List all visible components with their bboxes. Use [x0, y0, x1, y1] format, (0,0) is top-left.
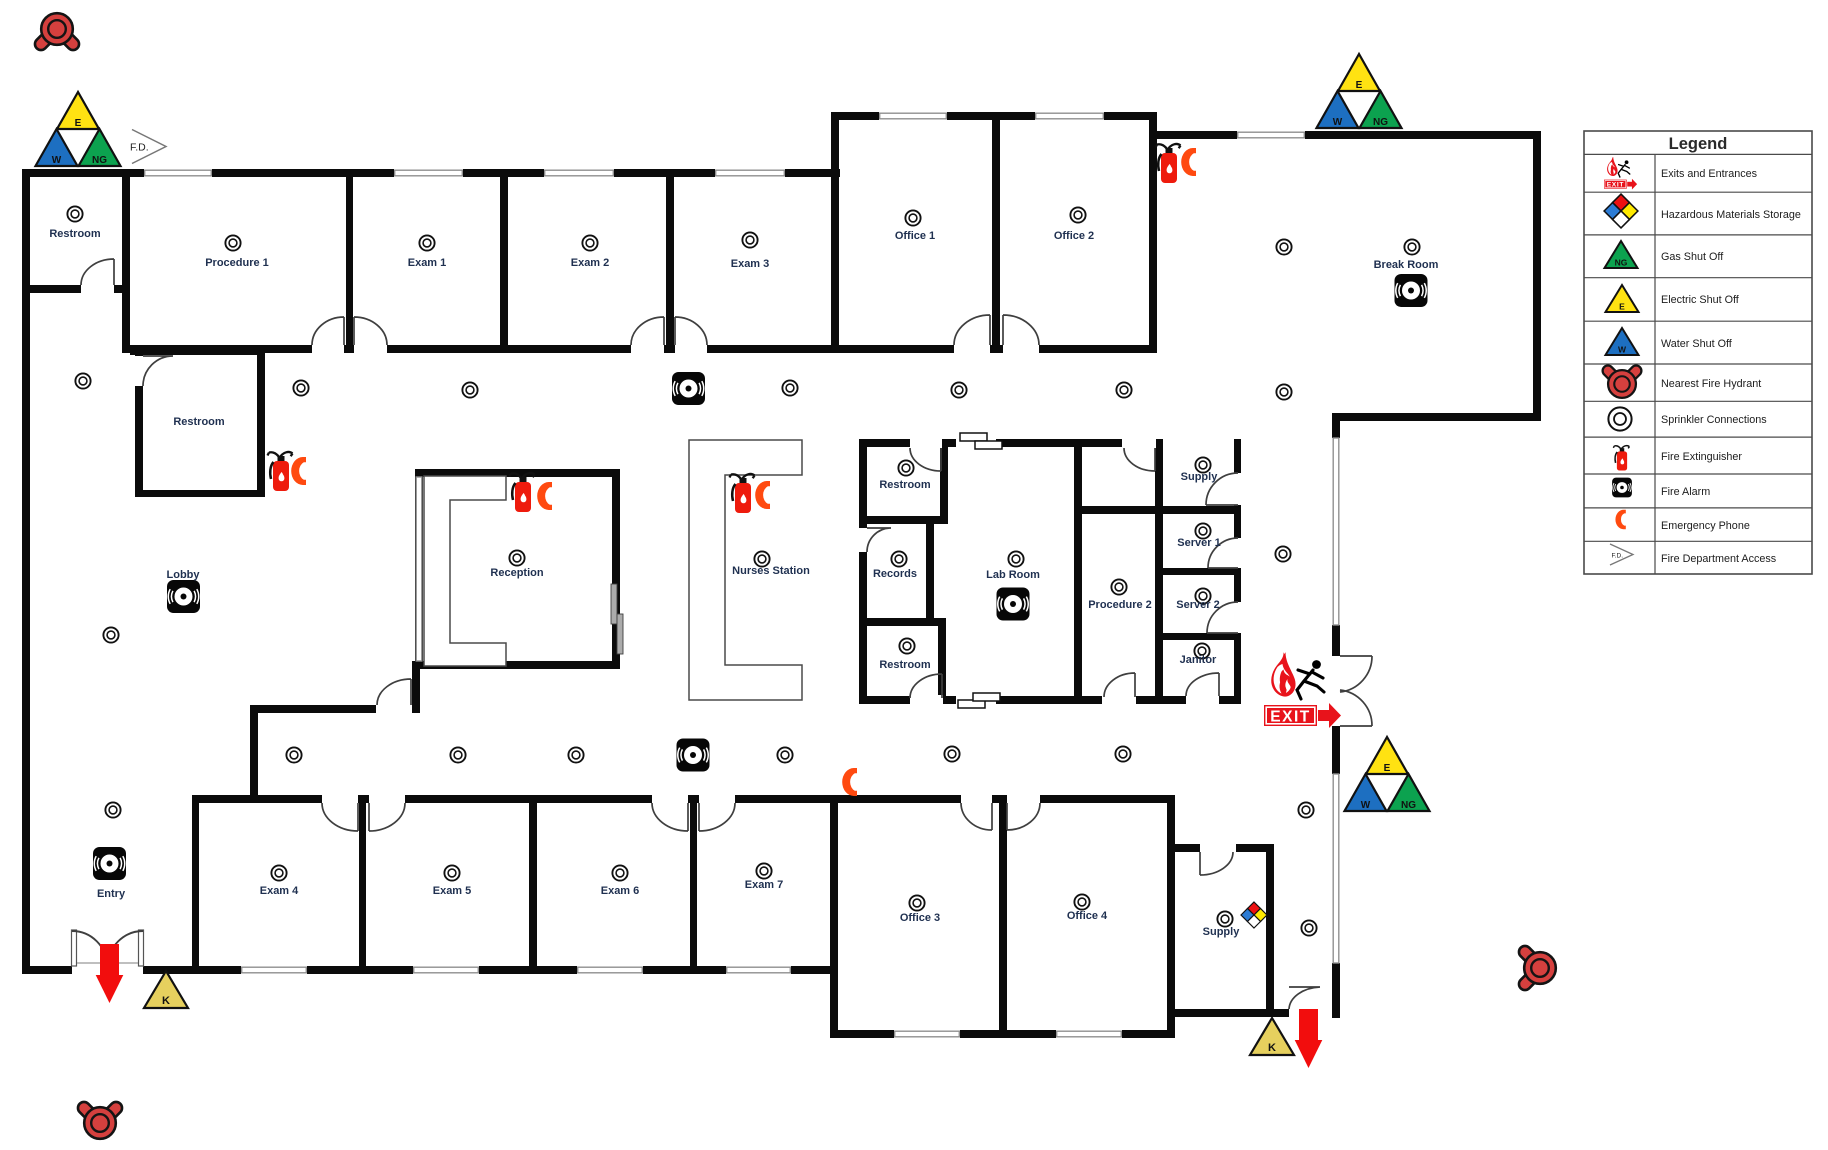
svg-text:Fire Extinguisher: Fire Extinguisher: [1661, 451, 1742, 463]
svg-text:Nurses Station: Nurses Station: [732, 565, 810, 577]
svg-text:Exam 6: Exam 6: [601, 885, 640, 897]
svg-text:F.D.: F.D.: [130, 142, 149, 154]
svg-text:Supply: Supply: [1181, 471, 1219, 483]
svg-text:Exits and Entrances: Exits and Entrances: [1661, 168, 1758, 180]
svg-text:W: W: [1618, 345, 1627, 355]
svg-text:Restroom: Restroom: [879, 659, 931, 671]
svg-text:Exam 1: Exam 1: [408, 257, 447, 269]
svg-text:Sprinkler Connections: Sprinkler Connections: [1661, 414, 1767, 426]
svg-text:Office 4: Office 4: [1067, 910, 1108, 922]
svg-text:Legend: Legend: [1669, 135, 1728, 153]
svg-text:Office 2: Office 2: [1054, 230, 1094, 242]
svg-text:Exam 2: Exam 2: [571, 257, 610, 269]
svg-text:Procedure 1: Procedure 1: [205, 257, 269, 269]
svg-text:Fire Alarm: Fire Alarm: [1661, 486, 1710, 498]
svg-text:Server 1: Server 1: [1177, 537, 1220, 549]
svg-text:Janitor: Janitor: [1180, 654, 1217, 666]
svg-text:Procedure 2: Procedure 2: [1088, 599, 1152, 611]
svg-text:Exam 7: Exam 7: [745, 879, 784, 891]
svg-text:Emergency Phone: Emergency Phone: [1661, 520, 1750, 532]
svg-text:Water Shut Off: Water Shut Off: [1661, 338, 1733, 350]
svg-text:Office 1: Office 1: [895, 230, 935, 242]
svg-text:Hazardous Materials Storage: Hazardous Materials Storage: [1661, 209, 1801, 221]
svg-text:Fire Department Access: Fire Department Access: [1661, 553, 1777, 565]
svg-text:Reception: Reception: [490, 567, 543, 579]
svg-text:Entry: Entry: [97, 888, 126, 900]
svg-text:Restroom: Restroom: [49, 228, 101, 240]
svg-text:Server 2: Server 2: [1176, 599, 1219, 611]
svg-text:Exam 4: Exam 4: [260, 885, 299, 897]
svg-text:Office 3: Office 3: [900, 912, 940, 924]
svg-text:Exam 3: Exam 3: [731, 258, 770, 270]
svg-text:Gas Shut Off: Gas Shut Off: [1661, 251, 1724, 263]
svg-text:Exam 5: Exam 5: [433, 885, 472, 897]
svg-text:Break Room: Break Room: [1374, 259, 1439, 271]
svg-text:Supply: Supply: [1203, 926, 1241, 938]
svg-text:Records: Records: [873, 568, 917, 580]
svg-text:E: E: [1619, 302, 1625, 312]
svg-text:Lab Room: Lab Room: [986, 569, 1040, 581]
svg-text:F.D.: F.D.: [1612, 553, 1624, 560]
svg-text:Nearest Fire Hydrant: Nearest Fire Hydrant: [1661, 378, 1761, 390]
svg-text:Restroom: Restroom: [173, 416, 225, 428]
svg-text:Electric Shut Off: Electric Shut Off: [1661, 294, 1740, 306]
svg-text:NG: NG: [1615, 258, 1628, 268]
svg-text:Lobby: Lobby: [167, 569, 201, 581]
svg-text:Restroom: Restroom: [879, 479, 931, 491]
